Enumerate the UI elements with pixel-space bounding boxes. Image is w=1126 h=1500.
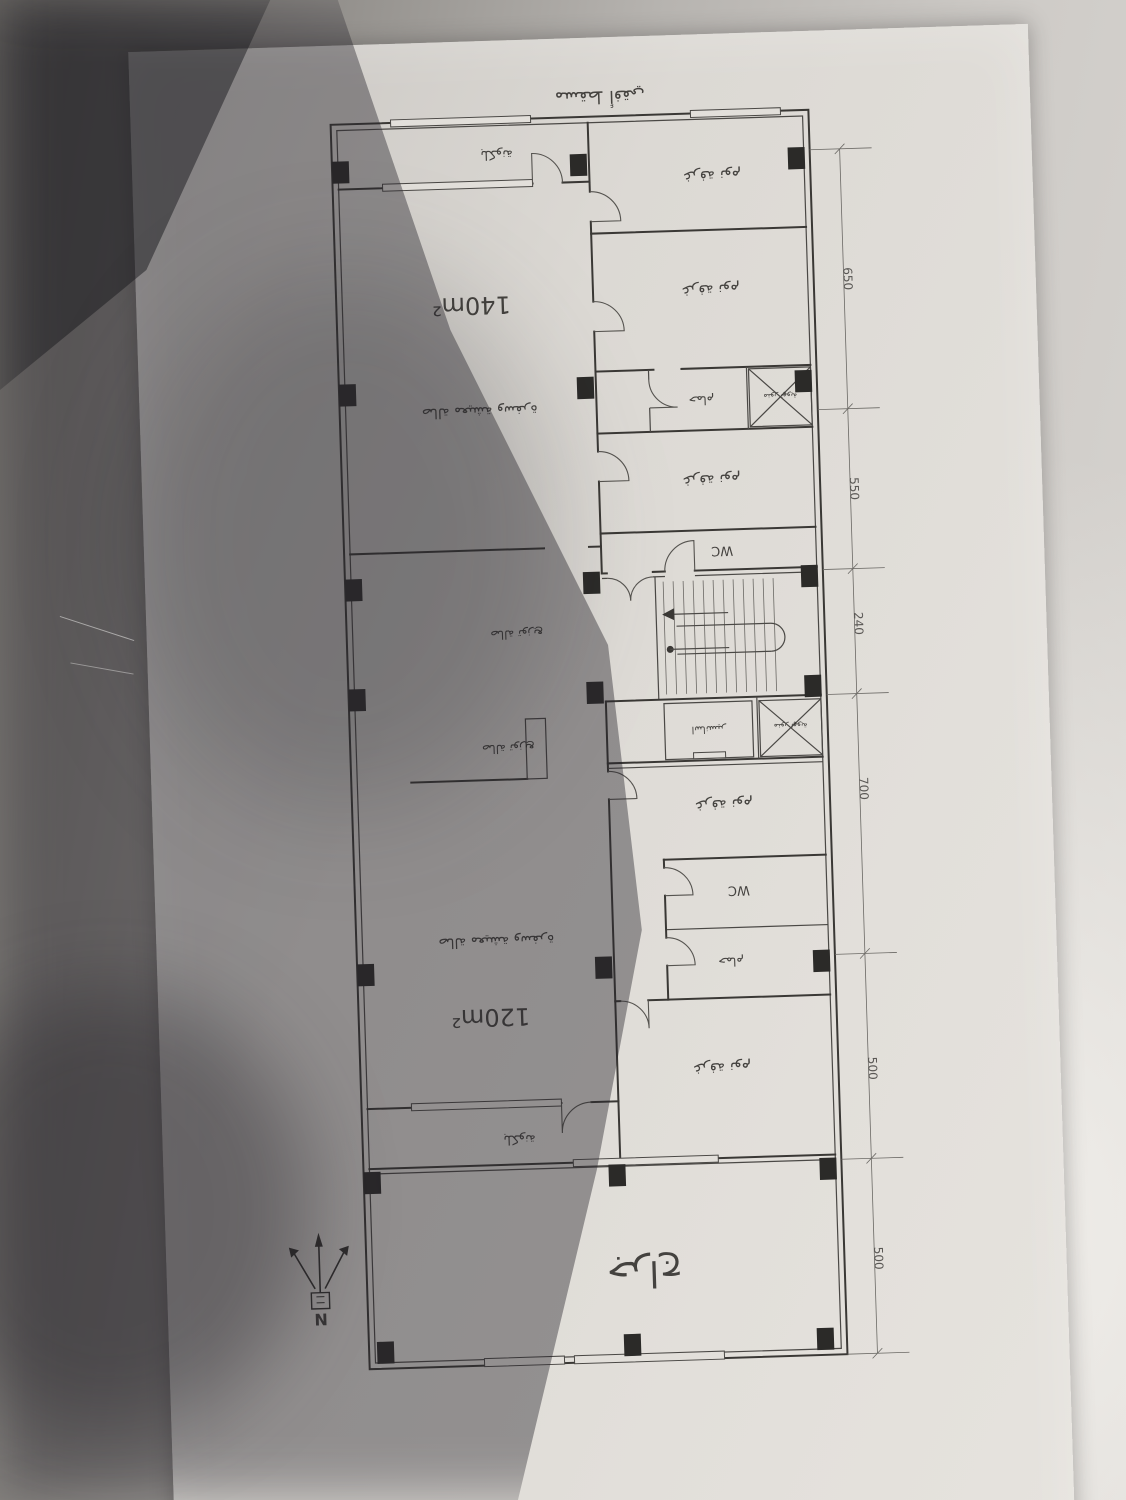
paper-sheet: 650 550 240 700 500 500 N مسقط أفقي بل [128,24,1077,1500]
surface-scratch [60,616,134,641]
balcony-label-bottom: بلكونة [503,1131,536,1147]
hall-label-upper: صالة توزيع [490,625,543,642]
floor-plan: 650 550 240 700 500 500 N مسقط أفقي بل [229,62,930,1402]
wc-label-top: WC [711,542,733,558]
living-label-bottom: صالة معيشة وسفرة [438,931,554,951]
elevator-label: اسانسير [691,723,727,735]
bedroom-label-2: غرفة نوم [682,280,740,300]
photo-scene: 650 550 240 700 500 500 N مسقط أفقي بل [0,0,1126,1500]
dimension-500-b: 500 [871,1246,886,1269]
area-label-bottom: 120m² [451,1002,531,1032]
hall-label-lower: صالة توزيع [482,740,535,757]
structural-columns [332,147,843,1364]
shaft-label-top: منور تهوية [763,391,797,401]
bedroom-label-3: غرفة نوم [683,470,741,490]
dimension-700: 700 [856,777,871,800]
bedroom-label-5: غرفة نوم [693,1058,751,1078]
wc-label-bottom: WC [728,882,750,898]
dimension-240: 240 [851,612,866,635]
bathroom-label-top: حمام [689,393,715,408]
stairs [661,578,786,695]
interior-walls [337,116,836,1174]
living-label-top: صالة معيشة وسفرة [421,401,537,421]
outer-wall [331,110,848,1369]
north-compass: N [288,1232,351,1330]
dimension-550: 550 [847,477,862,500]
balcony-label-top: بلكونة [480,146,513,162]
dimension-500-a: 500 [865,1057,880,1080]
area-label-top: 140m² [432,290,512,320]
dimension-650: 650 [840,267,855,290]
plan-title: مسقط أفقي [555,85,646,110]
bedroom-label-1: غرفة نوم [683,166,741,186]
garage-label: جراج [607,1251,684,1294]
bathroom-label-bottom: حمام [718,954,744,969]
north-label: N [314,1309,328,1328]
surface-scratch [70,662,133,674]
shaft-label-bottom: منور تهوية [774,721,808,731]
bedroom-label-4: غرفة نوم [695,795,753,815]
